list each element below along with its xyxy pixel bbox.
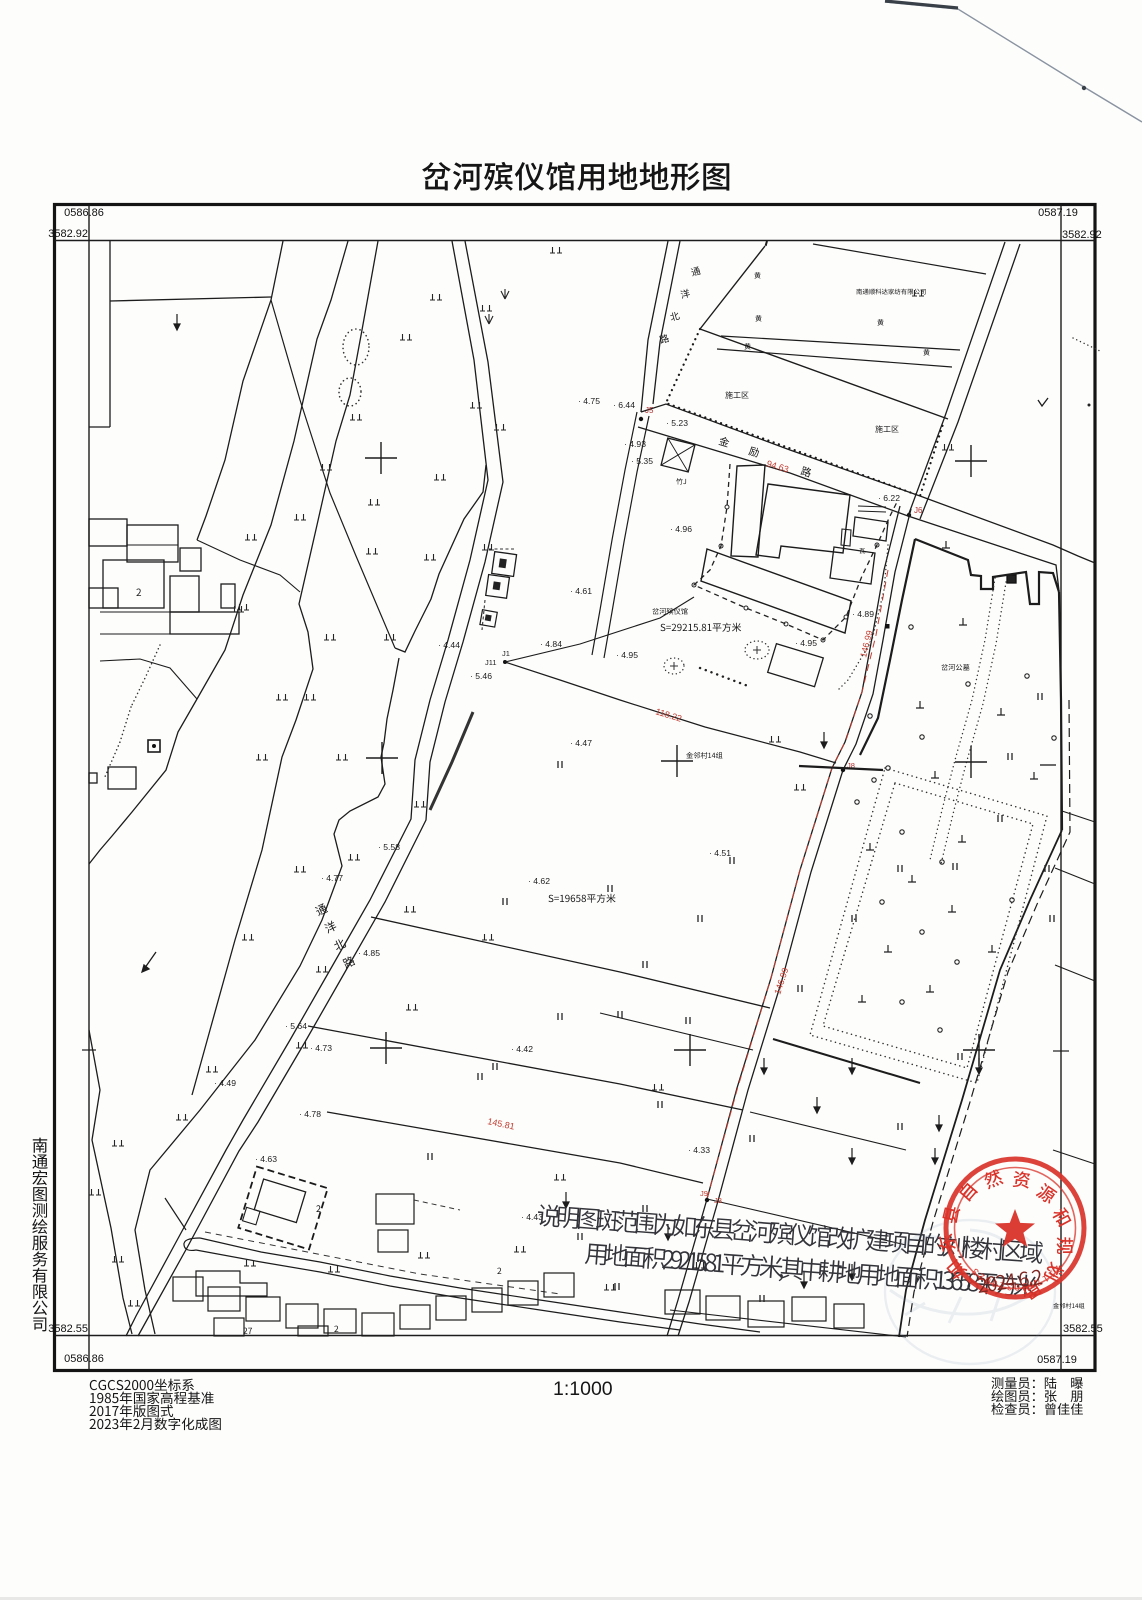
svg-text:0587.19: 0587.19 <box>1037 1354 1077 1366</box>
svg-text:J1: J1 <box>502 649 510 658</box>
svg-text:0586.86: 0586.86 <box>64 207 104 219</box>
svg-text:· 4.73: · 4.73 <box>310 1043 332 1053</box>
svg-text:· 4.47: · 4.47 <box>570 738 592 748</box>
svg-text:· 4.62: · 4.62 <box>528 876 550 886</box>
svg-text:· 5.46: · 5.46 <box>470 671 492 681</box>
svg-text:· 4.89: · 4.89 <box>852 609 874 619</box>
svg-text:· 4.33: · 4.33 <box>688 1145 710 1155</box>
svg-text:· 4.49: · 4.49 <box>214 1078 236 1088</box>
svg-text:J5: J5 <box>645 406 654 415</box>
svg-text:· 4.43: · 4.43 <box>521 1212 543 1222</box>
svg-text:· 4.51: · 4.51 <box>709 848 731 858</box>
svg-text:· 4.96: · 4.96 <box>670 524 692 534</box>
svg-text:· 6.44: · 6.44 <box>613 400 635 410</box>
svg-text:J9: J9 <box>700 1189 708 1198</box>
svg-text:· 6.22: · 6.22 <box>878 493 900 503</box>
svg-text:0586.86: 0586.86 <box>64 1353 104 1365</box>
svg-text:J3: J3 <box>714 1196 722 1205</box>
svg-text:· 4.95: · 4.95 <box>616 650 638 660</box>
svg-text:1:1000: 1:1000 <box>553 1378 613 1400</box>
svg-text:· 5.35: · 5.35 <box>631 456 653 466</box>
svg-text:· 4.84: · 4.84 <box>540 639 562 649</box>
svg-text:J11: J11 <box>485 658 497 667</box>
svg-text:· 5.64: · 5.64 <box>285 1021 307 1031</box>
svg-text:· 4.77: · 4.77 <box>321 873 343 883</box>
svg-text:· 4.93: · 4.93 <box>624 439 646 449</box>
svg-text:· 5.23: · 5.23 <box>666 418 688 428</box>
svg-text:· 4.61: · 4.61 <box>570 586 592 596</box>
svg-text:3582.92: 3582.92 <box>1062 229 1102 241</box>
svg-text:· 4.42: · 4.42 <box>511 1044 533 1054</box>
svg-text:· 4.63: · 4.63 <box>255 1154 277 1164</box>
svg-text:3582.92: 3582.92 <box>48 228 88 240</box>
svg-text:3582.55: 3582.55 <box>1063 1323 1103 1335</box>
svg-text:· 5.58: · 5.58 <box>378 842 400 852</box>
svg-text:· 4.75: · 4.75 <box>578 396 600 406</box>
svg-text:· 4.85: · 4.85 <box>358 948 380 958</box>
svg-text:3582.55: 3582.55 <box>48 1323 88 1335</box>
svg-text:0587.19: 0587.19 <box>1038 207 1078 219</box>
svg-text:· 4.95: · 4.95 <box>795 638 817 648</box>
svg-text:· 4.44: · 4.44 <box>438 640 460 650</box>
svg-text:· 4.78: · 4.78 <box>299 1109 321 1119</box>
